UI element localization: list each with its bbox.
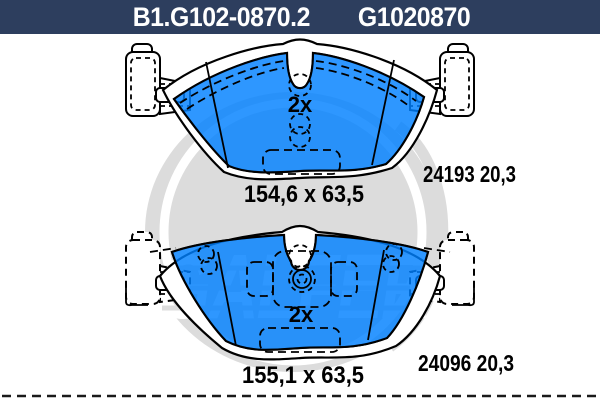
technical-drawing: GALFER 2x (0, 0, 600, 400)
part-code-secondary: G1020870 (358, 2, 470, 33)
top-pad-quantity-label: 2x (288, 92, 313, 117)
top-pad-dimensions: 154,6 x 63,5 (244, 181, 364, 208)
bottom-pad-reference: 24096 20,3 (418, 350, 514, 376)
title-bar: B1.G102-0870.2 G1020870 (0, 0, 600, 34)
bottom-pad-quantity-label: 2x (289, 302, 314, 327)
bottom-pad-dimensions: 155,1 x 63,5 (242, 362, 364, 389)
top-pad-reference: 24193 20,3 (423, 161, 516, 187)
part-code-primary: B1.G102-0870.2 (132, 2, 309, 33)
